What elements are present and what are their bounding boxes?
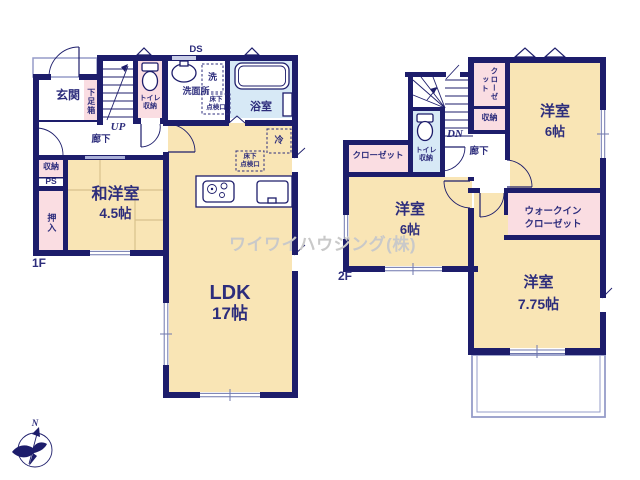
label-closet-top: クローゼット [474, 66, 505, 102]
label-bedroom1-size: 6帖 [510, 124, 600, 139]
label-duct-space: DS [184, 44, 208, 55]
balcony [472, 355, 605, 417]
toilet-door-arc-1f [141, 124, 160, 147]
label-pipe-space: PS [36, 176, 66, 186]
label-bedroom3-size: 7.75帖 [477, 296, 600, 313]
compass-icon [12, 427, 52, 467]
toilet-bowl-icon [418, 122, 433, 141]
toilet-tank-icon [142, 63, 158, 71]
vent-triangle-icon [245, 48, 259, 55]
label-ldk-size: 17帖 [168, 304, 292, 324]
label-shoe-box: 下足箱 [84, 83, 98, 119]
label-compass-north: N [27, 418, 43, 429]
vent-triangle-icon [515, 48, 535, 57]
label-jw-room-size: 4.5帖 [68, 206, 163, 222]
label-stairs-down: DN [438, 128, 472, 141]
washbasin-icon [172, 64, 196, 82]
label-wic-line1: ウォークイン [506, 206, 600, 217]
label-ldk-name: LDK [168, 282, 292, 306]
label-bathroom: 浴室 [230, 101, 292, 114]
label-floor-hatch-1: 床下 点検口 [200, 96, 232, 111]
label-wic-line2: クローゼット [506, 219, 600, 230]
label-toilet-storage-1f: トイレ 収納 [131, 95, 169, 112]
label-bedroom1-name: 洋室 [510, 103, 600, 121]
label-floor-hatch-2: 床下 点検口 [234, 153, 266, 168]
label-floor-2f: 2F [338, 269, 368, 283]
stairs-1f [103, 64, 133, 120]
label-toilet-storage-2f: トイレ 収納 [406, 147, 446, 164]
bathtub-icon [235, 63, 289, 89]
label-hallway-2f: 廊下 [462, 146, 496, 157]
entrance-door-arc [49, 47, 79, 77]
label-bedroom3-name: 洋室 [477, 274, 600, 292]
watermark-company: ワイワイハウジング(株) [229, 230, 416, 255]
toilet-bowl-icon [143, 72, 158, 91]
washbasin-tap-icon [180, 61, 188, 66]
label-storage-1f: 収納 [36, 162, 66, 171]
vent-triangle-icon [545, 48, 565, 57]
floor2-fixtures [417, 114, 433, 141]
stove-icon [203, 181, 234, 202]
genkan-hall-door-arc [36, 128, 63, 155]
room-ldk [168, 123, 292, 393]
label-fridge: 冷 [267, 135, 291, 146]
label-hallway-1f: 廊下 [84, 134, 118, 145]
label-storage-2f: 収納 [473, 113, 506, 122]
label-closet-left: クローゼット [348, 150, 408, 160]
label-jw-room-name: 和洋室 [68, 186, 163, 205]
floorplan-canvas: 玄関 下足箱 トイレ 収納 洗面所 DS 洗 浴室 廊下 UP 収納 PS 押入… [0, 0, 640, 480]
label-floor-1f: 1F [32, 256, 62, 270]
label-futon-closet: 押入 [43, 206, 59, 240]
toilet-tank-icon [417, 114, 433, 122]
faucet-icon [268, 198, 276, 203]
label-stairs-up: UP [101, 121, 135, 134]
label-bedroom2-name: 洋室 [348, 201, 472, 219]
vent-triangle-icon [137, 48, 151, 55]
label-washer: 洗 [202, 72, 223, 83]
